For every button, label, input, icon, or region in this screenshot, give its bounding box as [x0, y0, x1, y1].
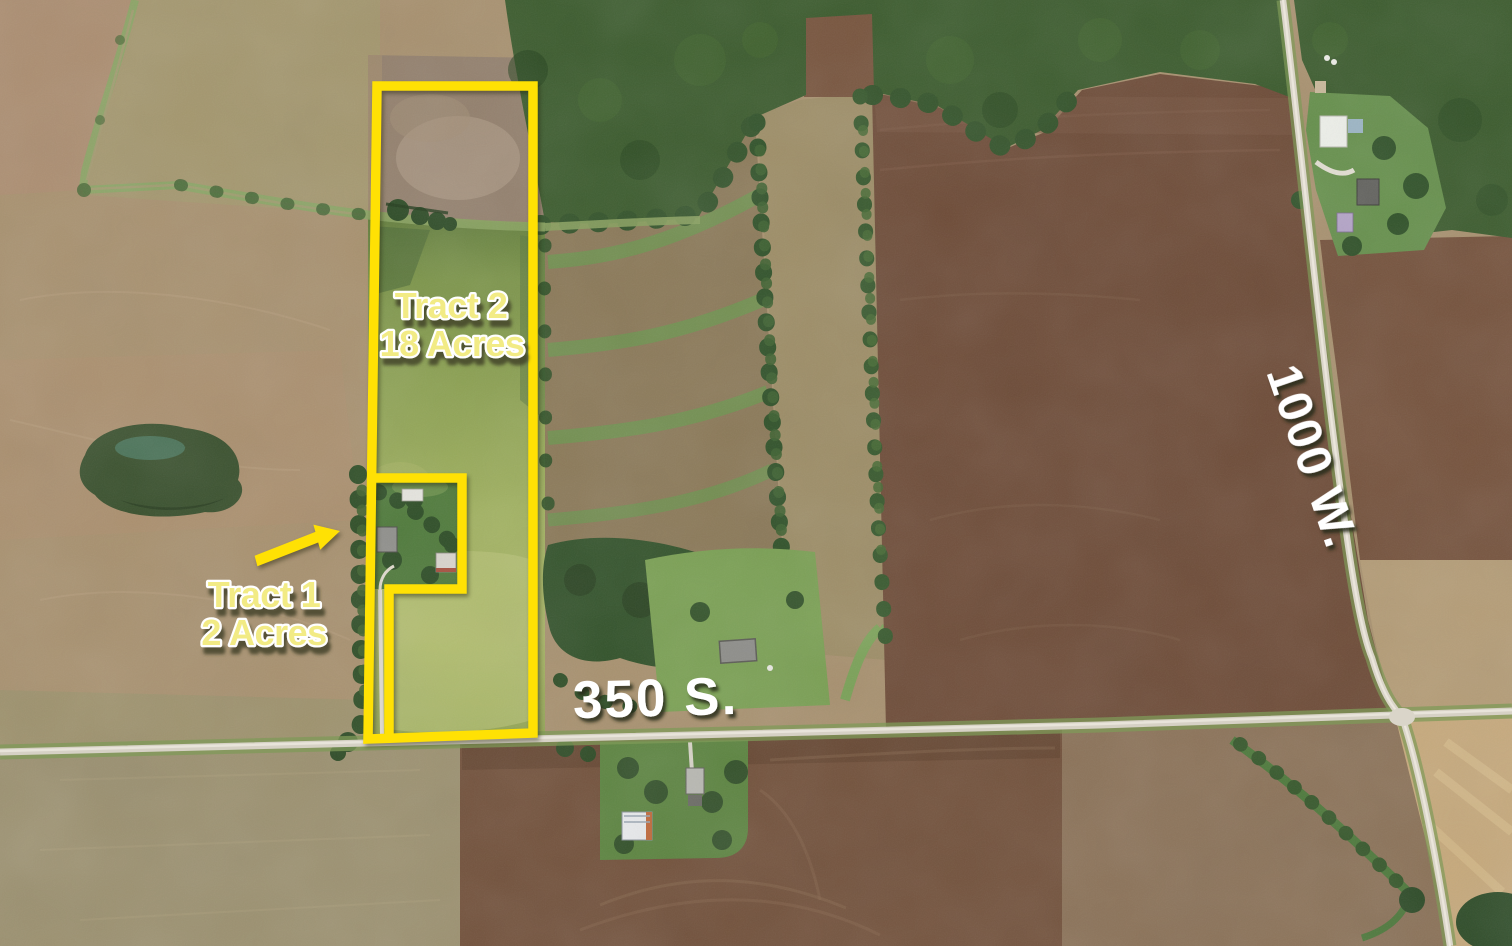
tract-2-label-line1: Tract 2 — [395, 285, 508, 326]
road-intersection — [1389, 708, 1415, 726]
aerial-auction-map: Tract 2 18 Acres Tract 1 2 Acres 350 S. … — [0, 0, 1512, 946]
photo-grain — [0, 0, 1512, 946]
tract-driveway — [380, 590, 382, 735]
tract-1-label-line1: Tract 1 — [208, 574, 321, 615]
tract-2-label-line2: 18 Acres — [380, 323, 525, 364]
tract-1-label-line2: 2 Acres — [201, 612, 326, 653]
aerial-photo: Tract 2 18 Acres Tract 1 2 Acres 350 S. … — [0, 0, 1512, 946]
road-label-350s: 350 S. — [572, 667, 739, 730]
